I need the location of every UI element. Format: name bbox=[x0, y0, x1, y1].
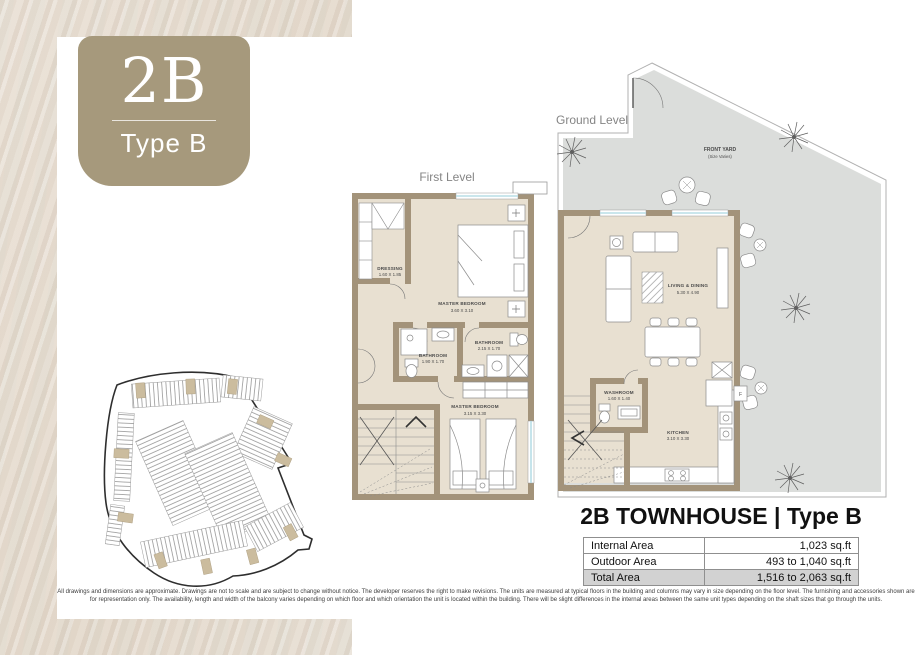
room-label: BATHROOM bbox=[419, 353, 447, 358]
disclaimer-line2: for representation only. The availabilit… bbox=[57, 597, 915, 605]
room-dims: 1.60 X 1.40 bbox=[608, 396, 631, 401]
room-label: BATHROOM bbox=[475, 340, 503, 345]
room-label: DRESSING bbox=[377, 266, 403, 271]
area-row-label: Total Area bbox=[584, 570, 705, 586]
room-label: KITCHEN bbox=[667, 430, 689, 435]
room-label: MASTER BEDROOM bbox=[438, 301, 485, 306]
first-level-plan: First Level bbox=[350, 165, 565, 510]
fridge: F bbox=[734, 386, 747, 401]
first-level-label: First Level bbox=[419, 170, 474, 184]
room-dims: 3.15 X 3.30 bbox=[464, 411, 487, 416]
site-plan bbox=[90, 355, 330, 595]
table-row: Internal Area 1,023 sq.ft bbox=[584, 538, 859, 554]
area-row-value: 493 to 1,040 sq.ft bbox=[705, 554, 859, 570]
room-dims: 1.60 X 1.85 bbox=[379, 272, 402, 277]
room-label: WASHROOM bbox=[604, 390, 634, 395]
area-row-value: 1,023 sq.ft bbox=[705, 538, 859, 554]
shaft-box bbox=[513, 182, 547, 194]
area-row-value: 1,516 to 2,063 sq.ft bbox=[705, 570, 859, 586]
dining-set bbox=[645, 318, 700, 366]
table-row-total: Total Area 1,516 to 2,063 sq.ft bbox=[584, 570, 859, 586]
room-label: LIVING & DINING bbox=[668, 283, 708, 288]
badge-divider bbox=[112, 120, 216, 121]
room-dims: 3.10 X 3.30 bbox=[667, 436, 690, 441]
room-dims: 2.15 X 1.70 bbox=[478, 346, 501, 351]
summary-block: 2B TOWNHOUSE | Type B Internal Area 1,02… bbox=[575, 503, 867, 586]
area-row-label: Internal Area bbox=[584, 538, 705, 554]
bedroom-window bbox=[456, 193, 518, 199]
unit-code: 2B bbox=[78, 50, 250, 112]
bed-double bbox=[458, 225, 528, 297]
disclaimer-line1: All drawings and dimensions are approxim… bbox=[57, 589, 915, 597]
room-dims: 1.90 X 1.70 bbox=[422, 359, 445, 364]
rug bbox=[642, 272, 663, 303]
page: 2B Type B First Level bbox=[57, 37, 915, 619]
table-row: Outdoor Area 493 to 1,040 sq.ft bbox=[584, 554, 859, 570]
area-table: Internal Area 1,023 sq.ft Outdoor Area 4… bbox=[583, 537, 859, 586]
room-dims: 5.30 X 4.90 bbox=[677, 290, 700, 295]
room-dims: 3.60 X 3.10 bbox=[451, 308, 474, 313]
fridge-label: F bbox=[739, 392, 742, 398]
summary-title: 2B TOWNHOUSE | Type B bbox=[575, 503, 867, 530]
ground-level-plan: Ground Level FRONT YARD (Size Varies) bbox=[550, 60, 890, 505]
unit-badge: 2B Type B bbox=[78, 36, 250, 186]
ground-level-label: Ground Level bbox=[556, 113, 628, 127]
bedroom2-wardrobe bbox=[463, 382, 528, 398]
bedroom2-window bbox=[528, 421, 534, 483]
disclaimer: All drawings and dimensions are approxim… bbox=[57, 589, 915, 604]
unit-type: Type B bbox=[78, 128, 250, 159]
yard-label: FRONT YARD bbox=[704, 147, 737, 153]
area-row-label: Outdoor Area bbox=[584, 554, 705, 570]
yard-sublabel: (Size Varies) bbox=[708, 154, 732, 159]
floorplan-sheet: 2B Type B First Level bbox=[0, 0, 915, 655]
room-label: MASTER BEDROOM bbox=[451, 404, 498, 409]
